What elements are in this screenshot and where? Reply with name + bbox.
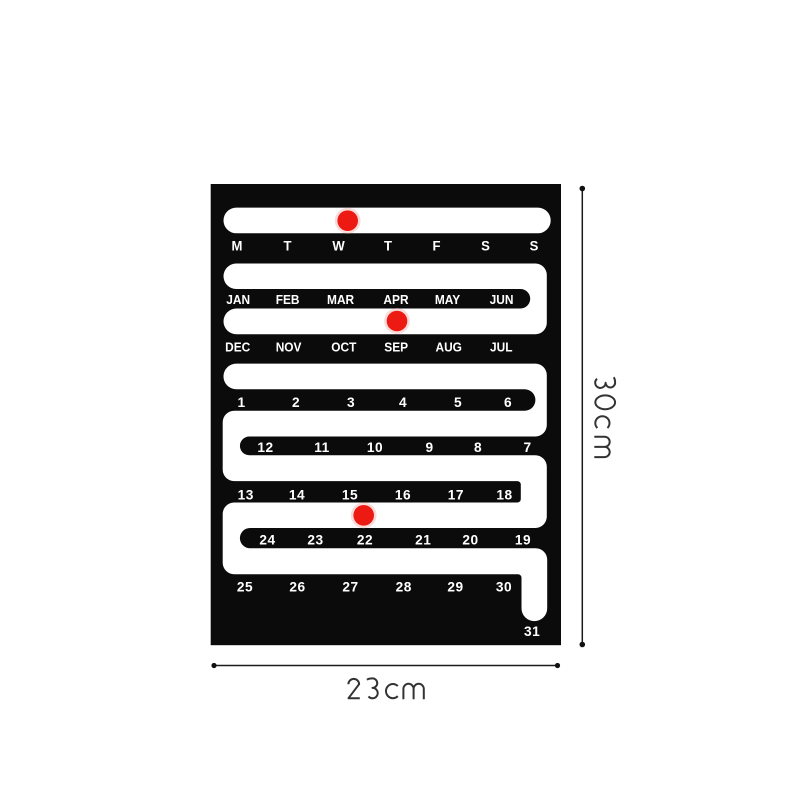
svg-text:2: 2 [292, 395, 300, 410]
svg-text:16: 16 [395, 488, 411, 503]
svg-text:11: 11 [314, 440, 329, 455]
svg-text:31: 31 [524, 624, 540, 639]
svg-text:W: W [332, 238, 345, 254]
svg-text:S: S [530, 238, 539, 254]
svg-text:21: 21 [415, 532, 431, 547]
svg-text:25: 25 [237, 579, 253, 594]
svg-text:7: 7 [523, 440, 531, 455]
svg-text:22: 22 [357, 532, 373, 547]
svg-text:17: 17 [448, 488, 464, 503]
svg-text:T: T [283, 238, 292, 254]
svg-text:18: 18 [496, 488, 512, 503]
svg-text:AUG: AUG [435, 340, 461, 354]
svg-text:APR: APR [383, 292, 408, 306]
svg-text:3: 3 [347, 395, 355, 410]
svg-text:29: 29 [447, 579, 463, 594]
svg-text:19: 19 [515, 532, 531, 547]
svg-text:14: 14 [289, 488, 305, 503]
svg-text:26: 26 [289, 579, 305, 594]
svg-text:24: 24 [259, 532, 275, 547]
svg-text:JAN: JAN [226, 292, 250, 306]
svg-text:30: 30 [496, 579, 512, 594]
svg-text:NOV: NOV [276, 340, 303, 354]
svg-text:27: 27 [342, 579, 358, 594]
svg-text:8: 8 [474, 440, 482, 455]
svg-text:T: T [384, 238, 393, 254]
svg-text:9: 9 [425, 440, 433, 455]
svg-text:6: 6 [504, 395, 512, 410]
svg-text:4: 4 [399, 395, 407, 410]
svg-text:F: F [432, 238, 440, 254]
svg-text:M: M [232, 238, 243, 254]
svg-text:1: 1 [237, 395, 245, 410]
svg-text:OCT: OCT [331, 340, 357, 354]
svg-text:SEP: SEP [384, 340, 408, 354]
svg-text:10: 10 [367, 440, 383, 455]
svg-text:12: 12 [257, 440, 273, 455]
svg-text:13: 13 [238, 488, 254, 503]
svg-text:S: S [481, 238, 490, 254]
svg-text:DEC: DEC [225, 340, 250, 354]
svg-text:20: 20 [462, 532, 478, 547]
svg-text:MAR: MAR [327, 292, 354, 306]
svg-text:15: 15 [342, 488, 358, 503]
svg-text:5: 5 [454, 395, 462, 410]
svg-text:28: 28 [396, 579, 412, 594]
svg-text:JUN: JUN [490, 292, 514, 306]
svg-text:23: 23 [307, 532, 323, 547]
svg-text:MAY: MAY [435, 292, 461, 306]
svg-text:FEB: FEB [276, 292, 300, 306]
svg-text:JUL: JUL [490, 340, 513, 354]
